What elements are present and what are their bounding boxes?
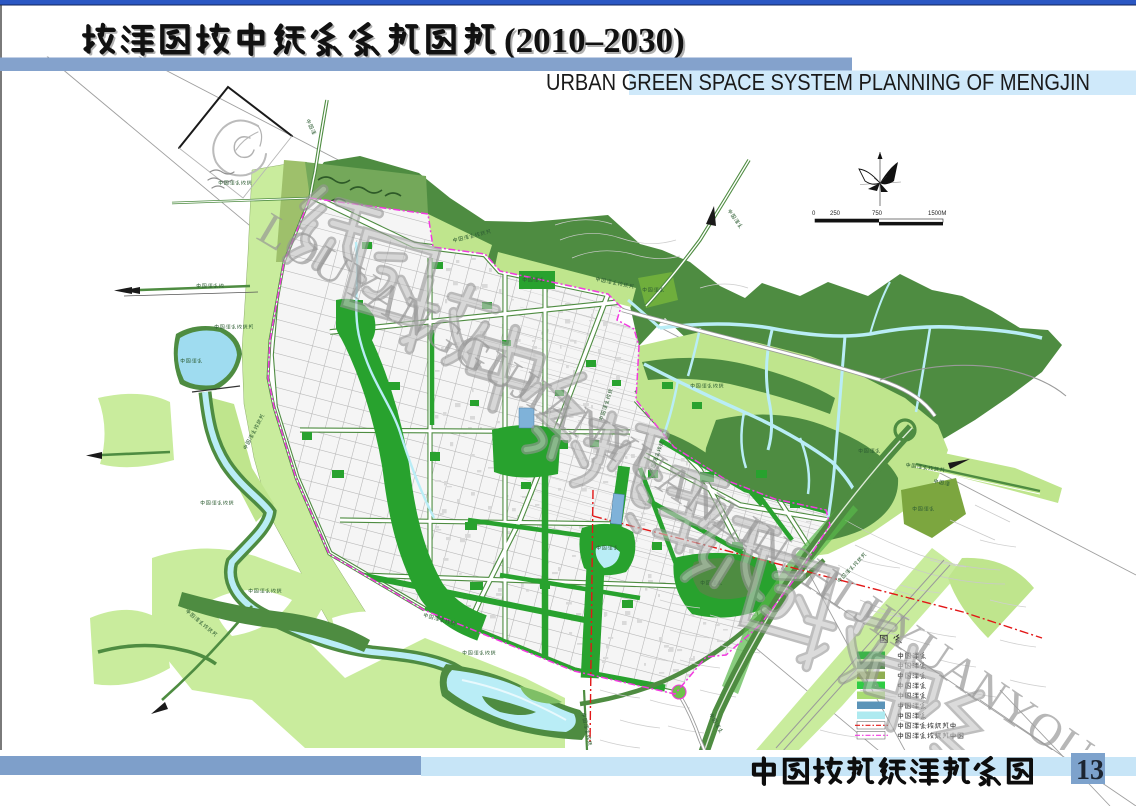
svg-text:13: 13 — [1076, 755, 1104, 786]
svg-text:URBAN GREEN SPACE SYSTEM PLANN: URBAN GREEN SPACE SYSTEM PLANNING OF MEN… — [546, 69, 1090, 95]
svg-text:250: 250 — [830, 211, 841, 217]
svg-text:1500M: 1500M — [928, 211, 946, 217]
svg-text:(2010–2030): (2010–2030) — [504, 21, 685, 60]
svg-text:750: 750 — [872, 211, 883, 217]
